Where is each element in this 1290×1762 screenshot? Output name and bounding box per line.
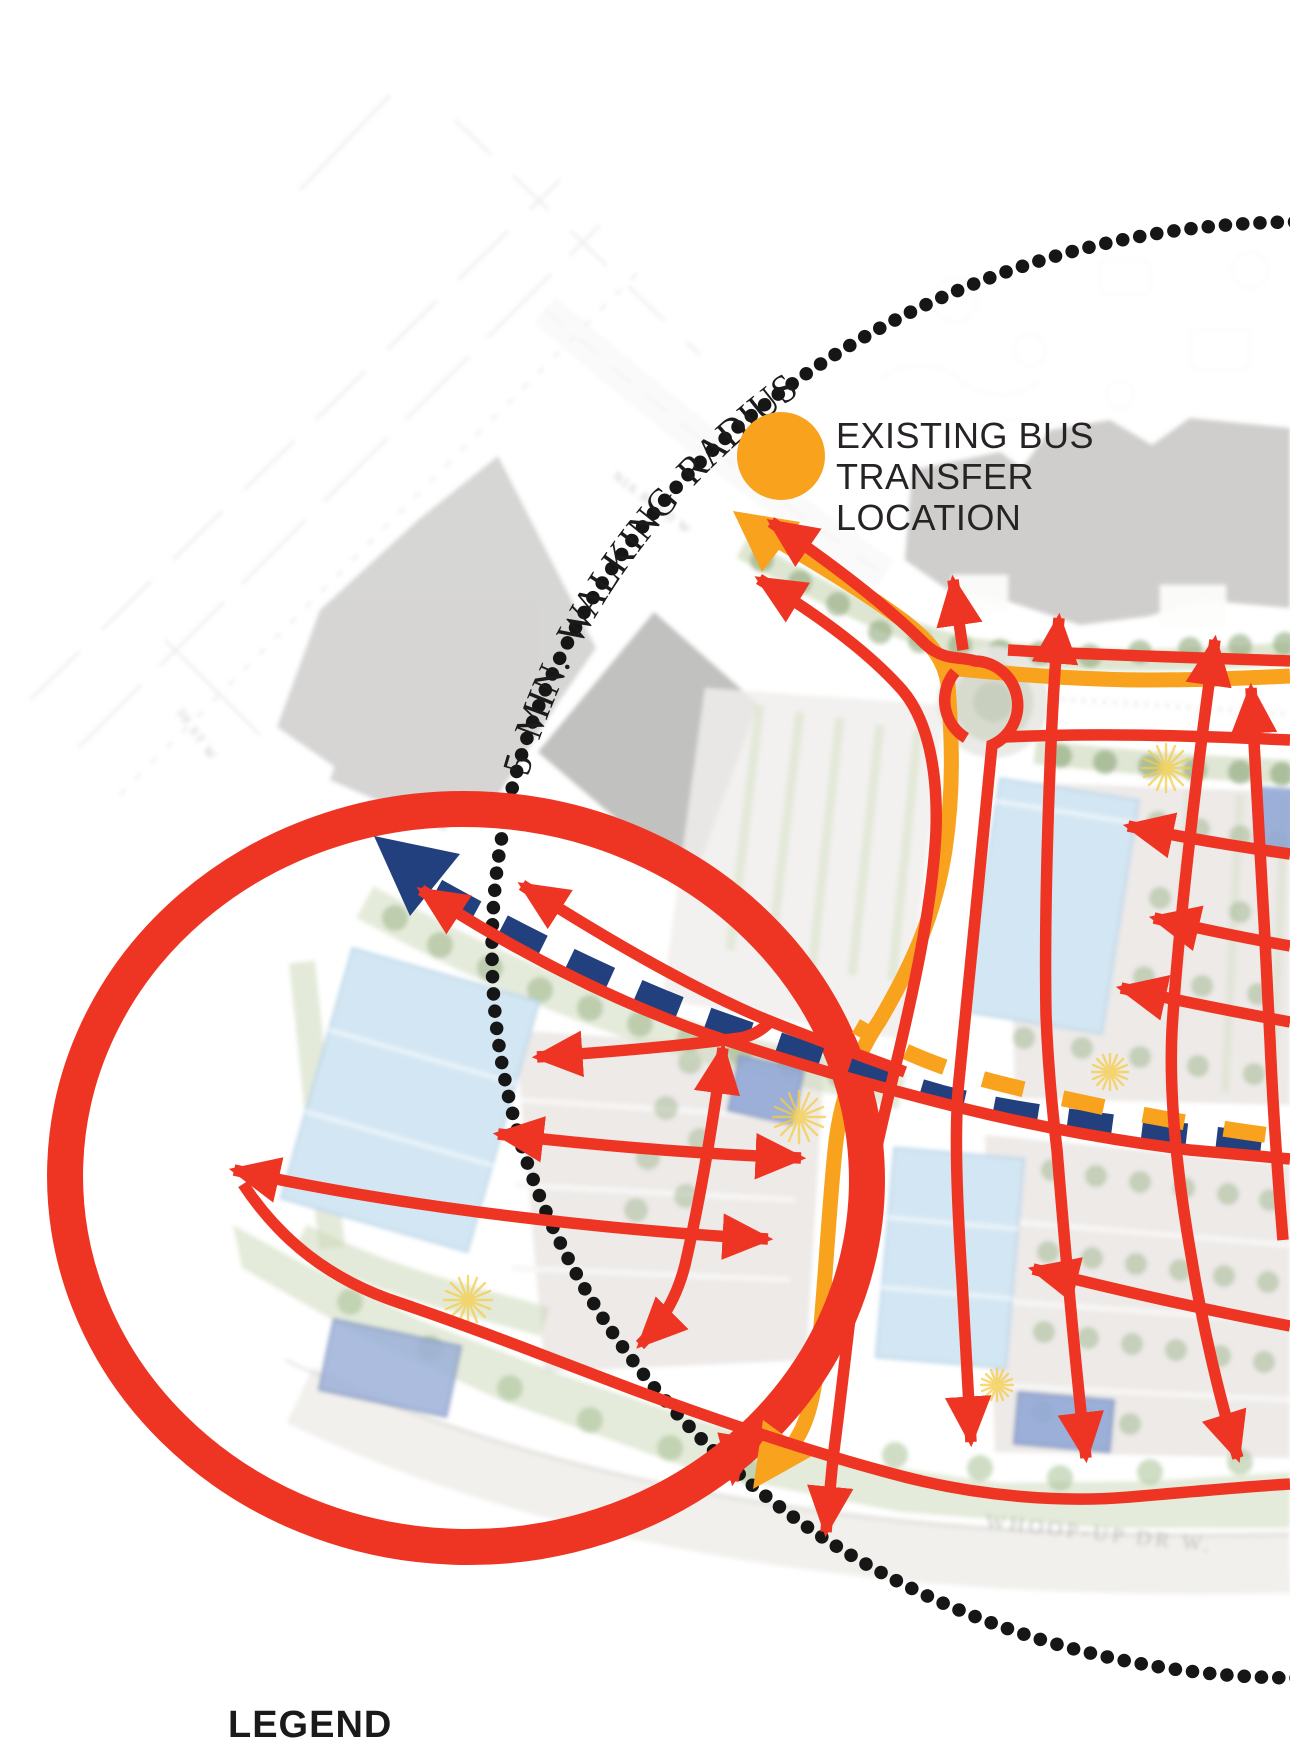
svg-text:LOCATION: LOCATION <box>836 497 1021 538</box>
svg-text:TRANSFER: TRANSFER <box>836 456 1034 497</box>
svg-text:30 ST W: 30 ST W <box>174 705 221 763</box>
svg-text:EXISTING BUS: EXISTING BUS <box>836 415 1094 456</box>
svg-text:LEGEND: LEGEND <box>228 1704 392 1746</box>
